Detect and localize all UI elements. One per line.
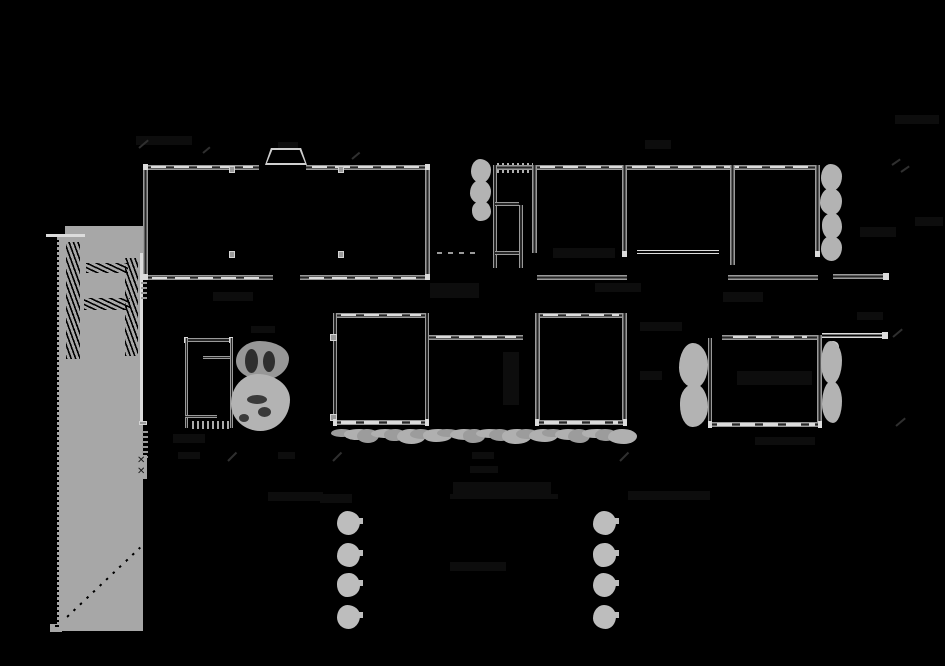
round-tree [593,543,616,567]
shrub-scribble-row [84,298,130,310]
wall-stub-hatch [141,282,147,302]
label-smudge [470,466,498,473]
label-smudge [278,452,295,459]
classroom-c-bottom-windows [717,423,815,426]
label-smudge [895,115,939,124]
column [330,334,337,341]
label-smudge [915,217,943,226]
label-smudge [178,452,200,459]
diagonal-tick [227,452,237,462]
road-edge-hatch [142,431,148,458]
trb-room-wall [519,205,523,268]
classroom-c-top-windows [733,336,807,338]
window-sill [637,250,719,254]
annex-stair-ticks [192,421,232,429]
road-top-notch [46,234,85,237]
round-tree [337,573,360,597]
annex-interior-wall [203,356,230,359]
wall-cap [535,419,539,426]
wall-cap [815,251,820,257]
classroom-b-right-wall [622,313,627,425]
wall-cap [425,164,430,170]
label-smudge [553,248,615,258]
label-smudge [737,371,812,385]
wall-cap [425,274,430,280]
tree-blob [821,164,842,191]
label-smudge [723,292,763,302]
classroom-a-left-wall [333,313,337,425]
tree-branch-tab [358,550,363,556]
trb-room-wall [495,202,519,206]
trb-top-windows [540,166,812,168]
label-smudge [755,437,815,445]
trb-partition-wall [532,165,537,253]
entrance-canopy [265,148,307,165]
x-marker: ✕ [137,467,149,477]
label-smudge [320,494,352,503]
trb-partition-wall [730,165,735,265]
tree-blob [822,381,842,423]
label-smudge [453,482,551,494]
tlb-left-wall [143,165,148,280]
wall-cap [333,419,337,426]
tree-shadow-hole [263,351,275,372]
column [338,166,344,173]
tree-branch-tab [614,580,619,586]
label-smudge [628,491,710,500]
tree-blob [821,341,842,384]
classroom-c-left-wall [708,338,712,427]
label-smudge [857,312,883,320]
label-smudge [645,140,671,149]
annex-bottom-wall [185,415,217,418]
diagonal-tick [900,165,909,172]
label-smudge [472,452,494,459]
round-tree [593,573,616,597]
diagonal-tick [202,146,210,153]
classroom-c-right-wall [817,335,822,427]
walkway-wall [833,274,883,279]
annex-top-wall [185,338,233,342]
tree-branch-tab [358,612,363,618]
road-edge-cap [139,421,147,425]
tree-branch-tab [358,580,363,586]
wall-cap [425,419,429,426]
label-smudge [640,322,682,331]
wall-cap [708,421,712,428]
diagonal-tick [895,418,905,427]
diagonal-tick [619,452,629,462]
classroom-b-bottom-windows [544,421,618,424]
round-tree [593,511,616,535]
round-tree [337,605,360,629]
wall-cap [622,251,627,257]
tree-shadow-hole [247,395,267,404]
dashed-path [437,252,479,254]
tree-shadow-hole [239,414,249,422]
tree-branch-tab [614,518,619,524]
shrub-scribble-column [66,242,80,359]
label-smudge [860,227,896,237]
label-smudge [430,283,479,298]
site-plan-drawing: ✕✕ [0,0,945,666]
wall-cap [882,332,888,339]
column [338,251,344,258]
label-smudge [173,434,205,443]
classroom-b-top-windows [543,314,619,316]
label-smudge [213,292,253,301]
classroom-b-left-wall [535,313,540,425]
diagonal-tick [891,158,900,165]
hedge-blob [608,429,637,444]
tlb-bottom-windows [152,277,260,279]
diagonal-tick [332,452,342,462]
tree-blob [680,384,708,427]
label-smudge [595,283,641,292]
round-tree [337,543,360,567]
label-smudge [268,492,323,501]
tree-branch-tab [358,518,363,524]
trb-right-wall [815,165,820,253]
wall-cap [623,419,627,426]
classroom-a-bottom-windows [341,421,421,424]
tree-shadow-hole [245,349,258,373]
shrub-scribble-row [86,263,128,273]
classroom-a-top-windows [341,314,421,316]
trb-partition-wall [622,165,627,253]
x-marker: ✕ [137,456,149,466]
label-smudge [278,142,298,148]
tree-branch-tab [614,612,619,618]
window-band [822,333,882,338]
tlb-right-wall [425,165,430,280]
road-left-ticks [55,240,59,629]
tlb-top-windows [151,166,253,168]
walkway-wall [537,275,627,280]
tree-blob [472,201,491,221]
label-smudge [450,562,506,571]
hedge-row [331,429,632,451]
tlb-bottom-windows [309,277,417,279]
tree-blob [820,188,842,215]
label-smudge [251,326,275,333]
canopy-inner [267,150,305,163]
diagonal-tick [351,152,360,160]
label-smudge [450,494,558,499]
diagonal-tick [892,329,902,338]
wall-cap [818,421,822,428]
wall-cap [143,164,148,170]
classroom-a-right-wall [425,313,429,425]
round-tree [593,605,616,629]
tree-branch-tab [614,550,619,556]
column [229,166,235,173]
walkway-wall [728,275,818,280]
label-smudge [640,371,662,380]
label-smudge [503,352,519,405]
courtyard-canopy-light [436,336,516,338]
tree-blob [821,236,842,261]
wall-cap [883,273,889,280]
wall-cap [143,274,148,280]
tree-blob [822,213,842,239]
tlb-top-windows [312,166,424,168]
round-tree [337,511,360,535]
tree-blob [679,343,708,388]
tree-shadow-hole [258,407,271,417]
column [229,251,235,258]
